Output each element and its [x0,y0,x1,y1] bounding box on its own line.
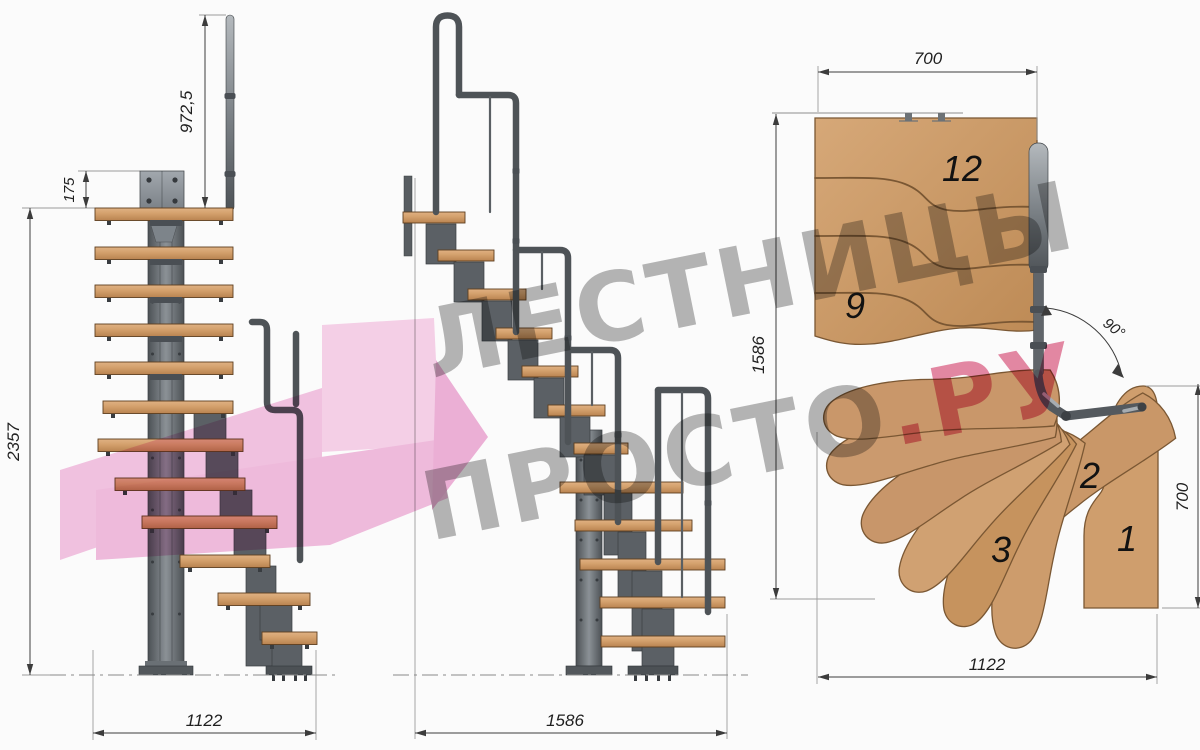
column-base-plate [139,666,193,675]
step-number-3: 3 [991,529,1011,570]
dim-plan-top-width: 700 [914,49,943,68]
dim-plan-right-width: 700 [1173,482,1192,511]
dim-plan-bottom-width: 1122 [969,655,1006,674]
dim-front-width: 1122 [186,711,223,730]
step-number-2: 2 [1079,455,1100,496]
dim-plan-length: 1586 [749,336,768,374]
step-number-1: 1 [1117,518,1137,559]
staircase-blueprint: 972,5 175 2357 1122 [0,0,1200,750]
column-base-cap [145,661,187,666]
dim-handrail-height: 972,5 [177,90,196,133]
front-elevation-view: 972,5 175 2357 1122 [4,15,340,740]
dim-plate-depth: 175 [61,177,78,203]
dim-total-height: 2357 [4,423,23,462]
dim-side-length: 1586 [546,711,584,730]
handrail-post [226,15,234,211]
